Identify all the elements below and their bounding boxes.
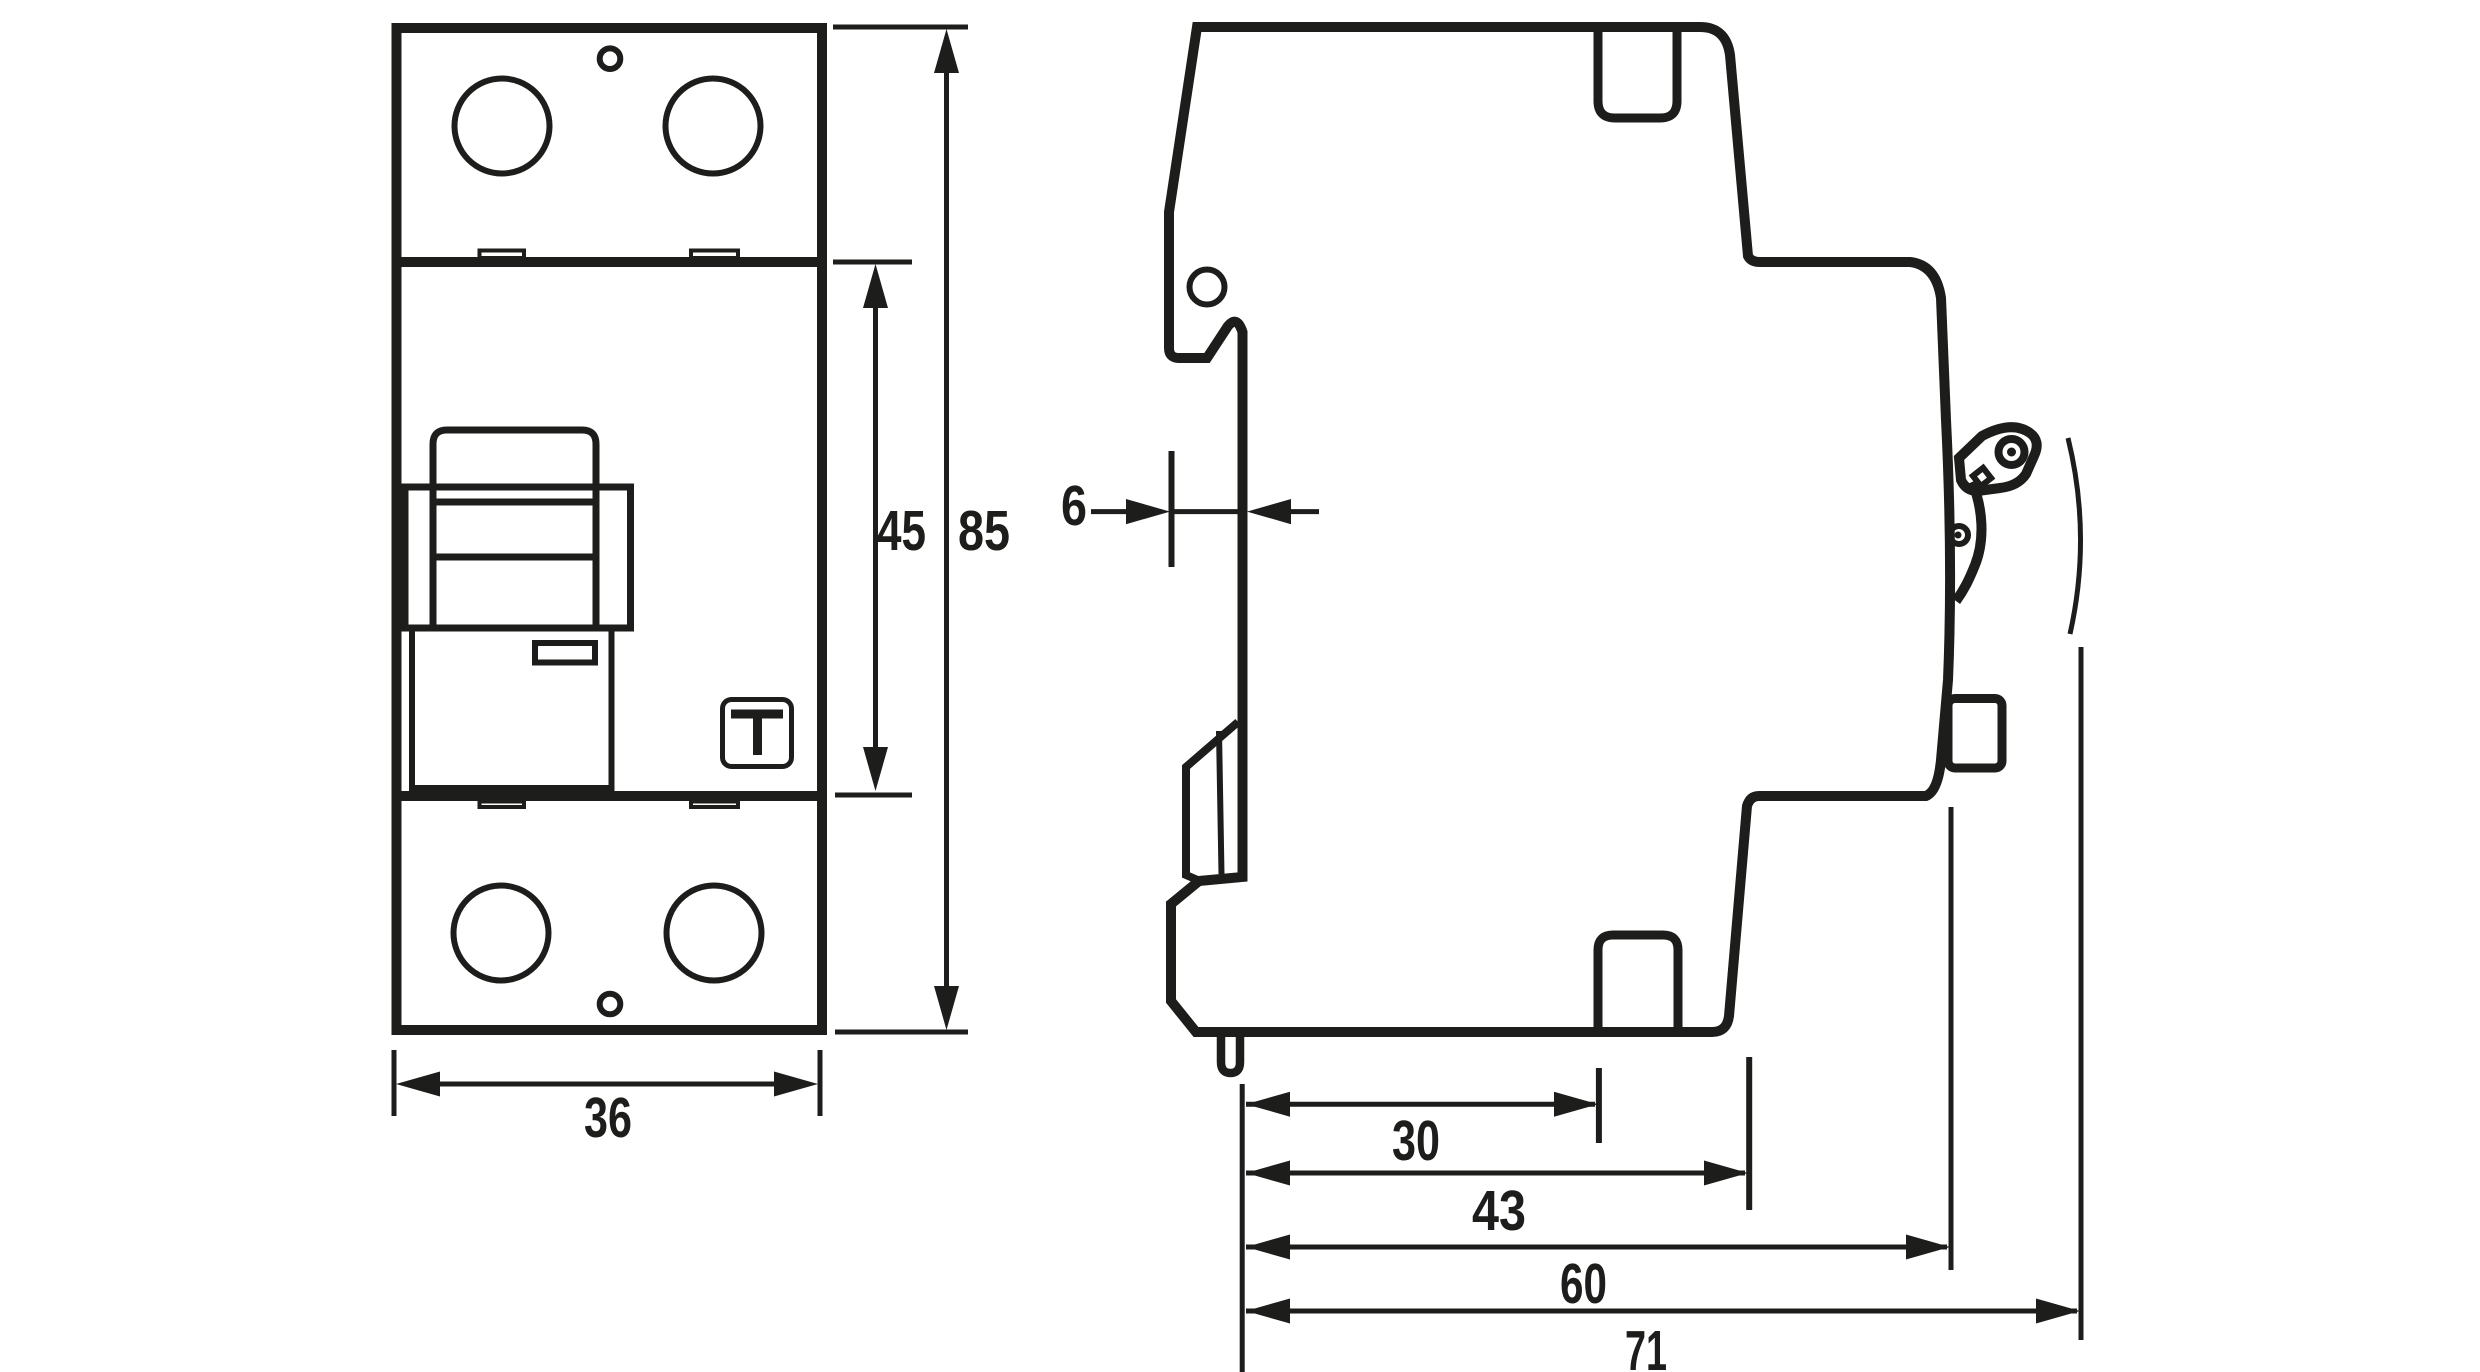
svg-text:6: 6 [1061, 474, 1087, 538]
svg-text:71: 71 [1625, 1319, 1667, 1372]
svg-text:30: 30 [1392, 1109, 1440, 1173]
svg-text:85: 85 [958, 499, 1010, 563]
svg-text:60: 60 [1560, 1252, 1607, 1316]
svg-text:45: 45 [877, 499, 926, 563]
svg-text:36: 36 [584, 1086, 632, 1150]
svg-text:43: 43 [1472, 1179, 1526, 1243]
